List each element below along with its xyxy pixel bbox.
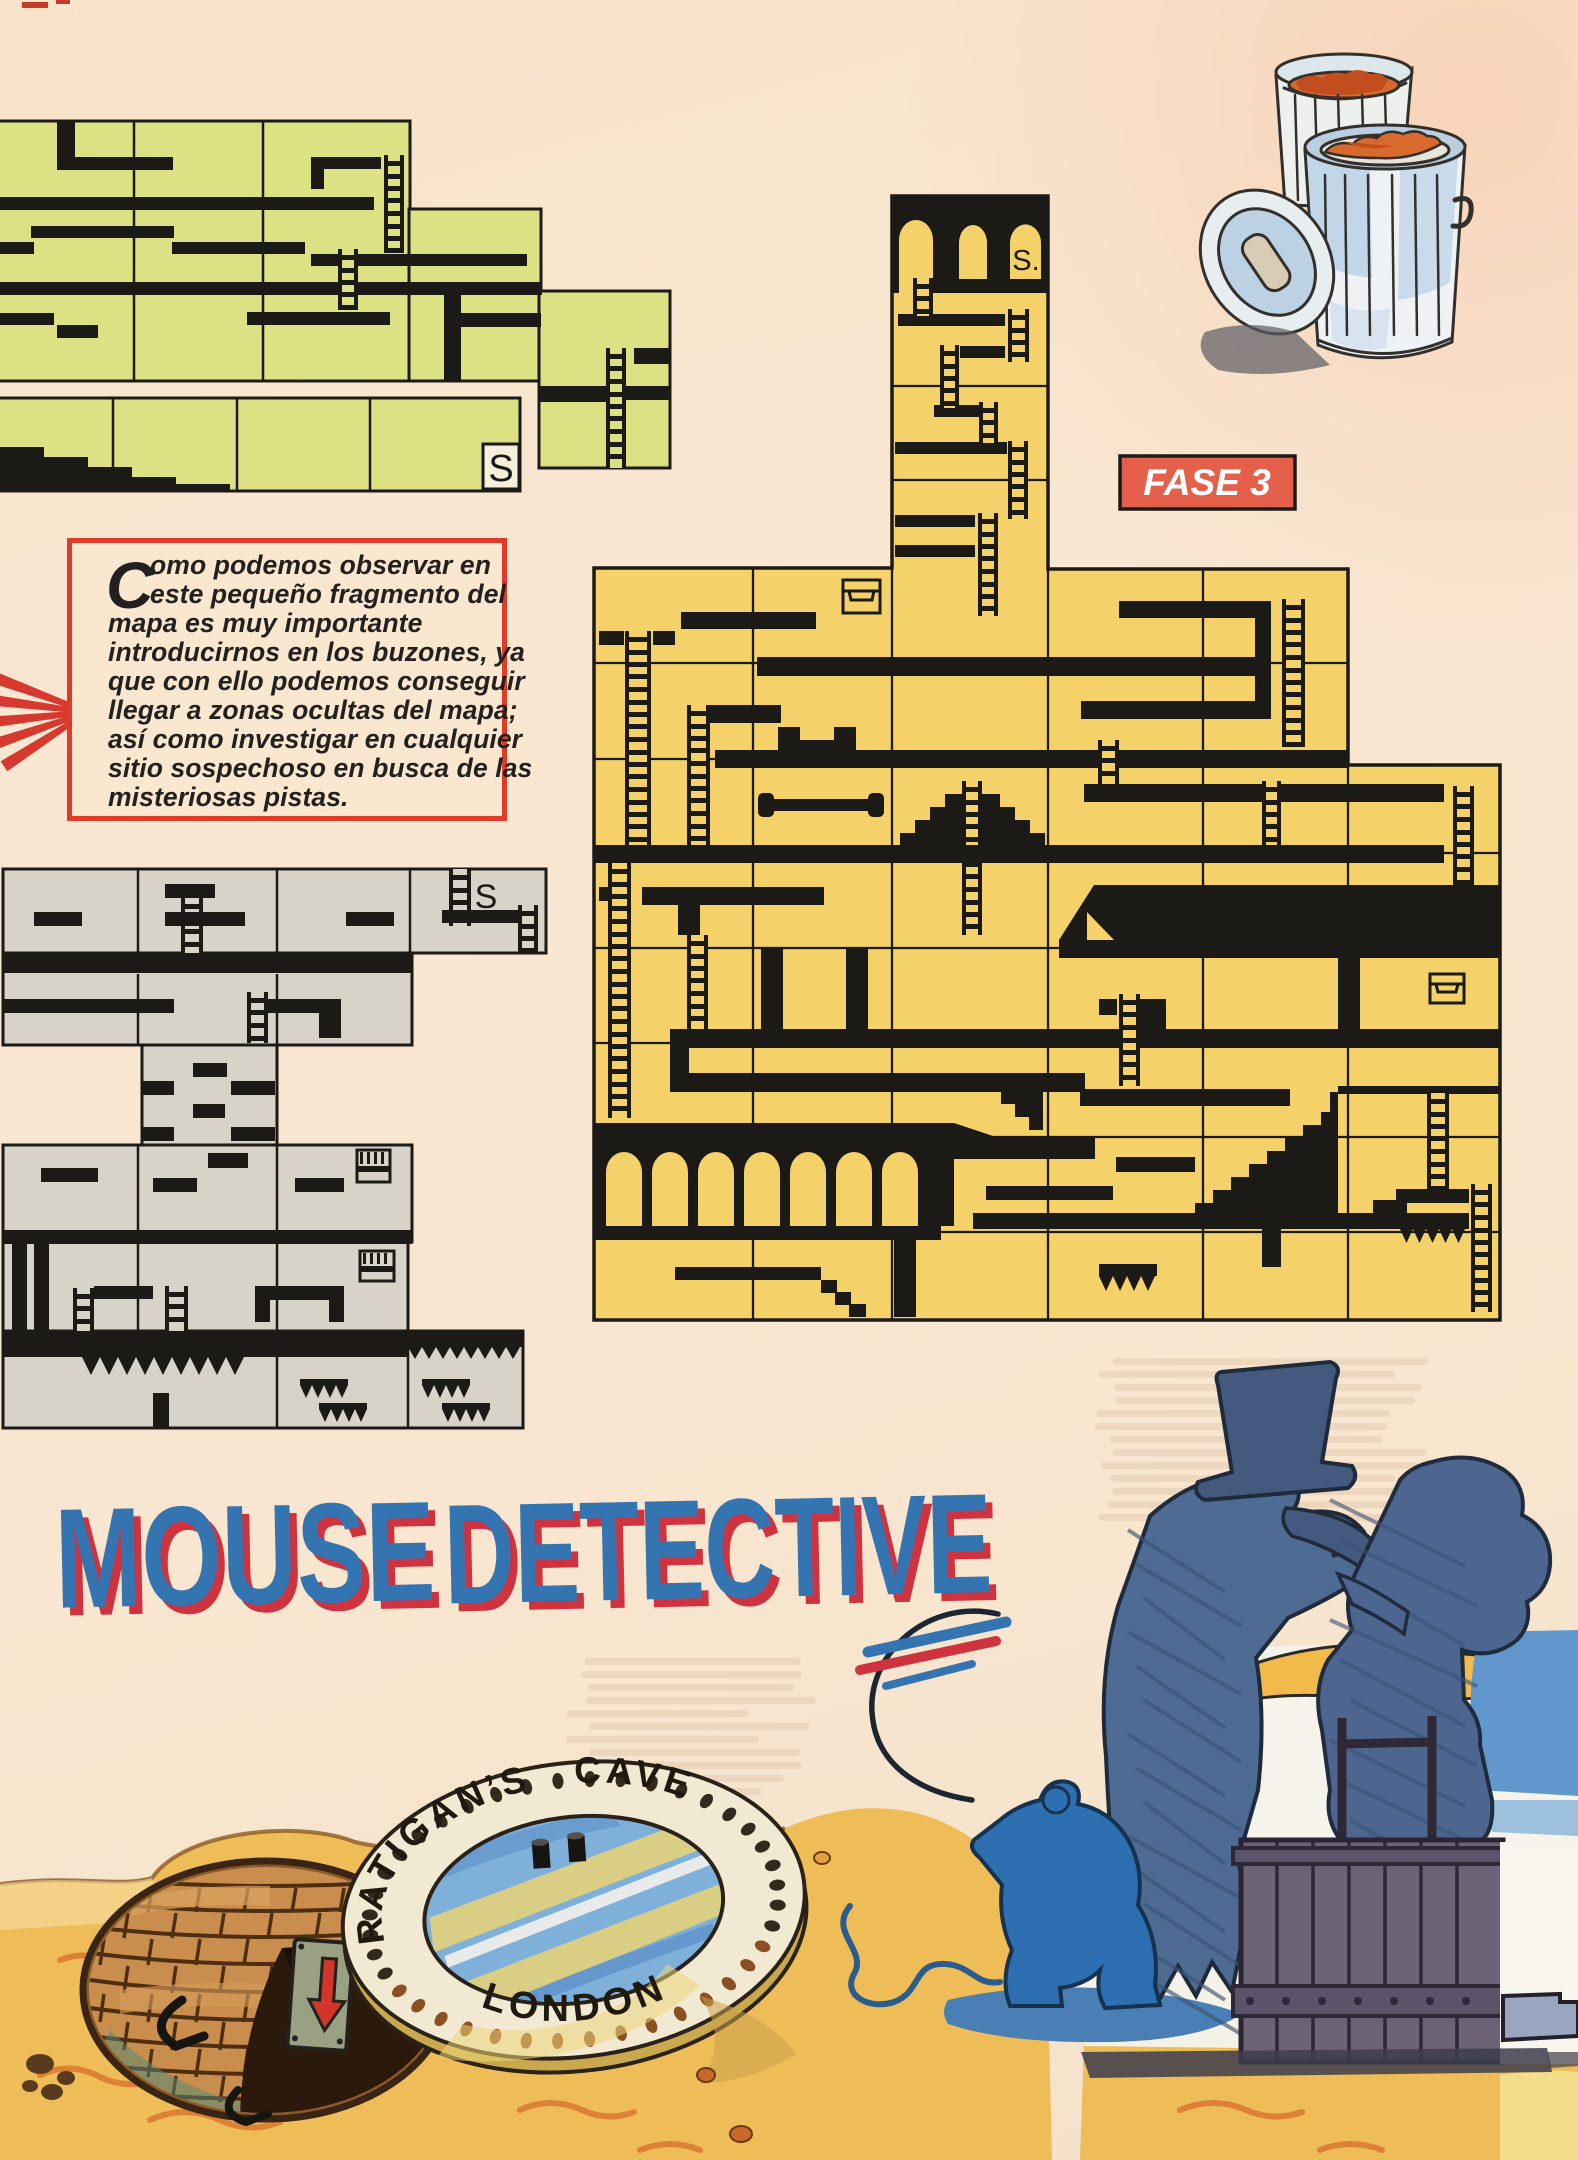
svg-text:FASE 3: FASE 3	[1143, 462, 1271, 503]
svg-text:S.: S.	[1012, 245, 1039, 277]
svg-text:DETECTIVE: DETECTIVE	[442, 1464, 993, 1634]
svg-text:S: S	[488, 448, 513, 490]
svg-text:MOUSE: MOUSE	[53, 1472, 436, 1639]
